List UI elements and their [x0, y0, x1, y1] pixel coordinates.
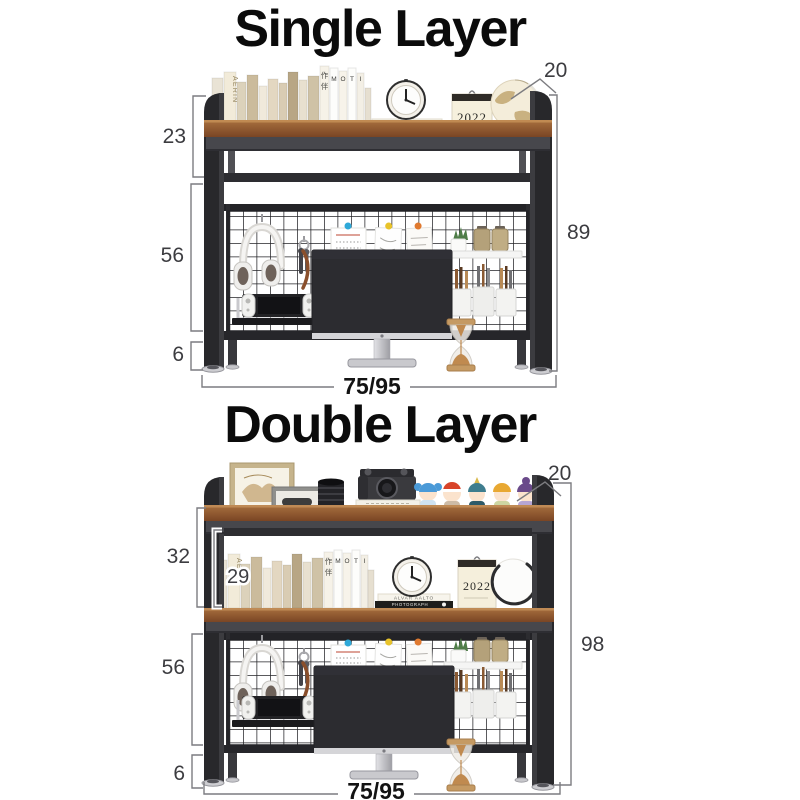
mesh-height-value-2: 56 [162, 656, 185, 679]
book-letter-i2: I [364, 558, 366, 565]
dimension-mesh-height-2: 56 [162, 634, 203, 745]
wood-shelf [204, 120, 552, 182]
hourglass-2 [447, 739, 475, 791]
book-cjk-char-1b: 作 [325, 556, 333, 566]
mesh-height-value: 56 [161, 244, 184, 267]
top-shelf-books: AERIN 作 伴 M O T I [212, 66, 371, 128]
ring-ornament [491, 559, 536, 604]
hourglass [447, 319, 475, 371]
monitor-base [348, 359, 416, 367]
metal-fascia [206, 137, 550, 151]
upper-crossbar [224, 528, 532, 536]
depth-value: 20 [544, 59, 567, 82]
total-height-value: 89 [567, 221, 590, 244]
single-layer-title: Single Layer [0, 2, 760, 57]
desk-calendar-2: 2022 [458, 557, 496, 608]
wall-clock [387, 79, 425, 119]
inner-shelf-value: 29 [227, 566, 249, 588]
top-section-value: 32 [167, 545, 190, 568]
depth-value-2: 20 [548, 462, 571, 485]
book-cjk-char-2: 伴 [321, 81, 329, 91]
single-layer-illustration: AERIN 作 伴 M O T I ALVAR AALTO [160, 50, 640, 402]
stacked-books-subtitle-2: PHOTOGRAPH [392, 602, 428, 607]
pin-blue [345, 223, 352, 230]
product-dimension-sheet: Single Layer Double Layer AERIN [0, 0, 800, 800]
book-letter-m: M [331, 76, 336, 83]
width-value-2: 75/95 [347, 778, 405, 800]
dimension-total-height: 89 [549, 95, 590, 371]
book-letter-m2: M [335, 558, 340, 565]
book-letter-t2: T [354, 558, 358, 565]
pen-cups-2 [451, 667, 516, 718]
dimension-feet-height: 6 [172, 342, 203, 370]
shelf-height-value: 23 [163, 125, 186, 148]
monitor-stand [374, 339, 390, 360]
total-height-value-2: 98 [581, 633, 604, 656]
monitor-2 [314, 666, 454, 779]
switch-console-shelf-2 [232, 696, 324, 727]
double-layer-illustration: AERIN 作 伴 M O T I ALVAR AALTO [160, 438, 640, 800]
book-cjk-char-1: 作 [321, 70, 329, 80]
book-letter-o2: O [344, 558, 349, 565]
crossbar [224, 173, 530, 182]
book-letter-o: O [340, 76, 345, 83]
dimension-width-2: 75/95 [204, 778, 560, 800]
dimension-feet-height-2: 6 [173, 755, 203, 788]
dimension-total-height-2: 98 [553, 483, 604, 785]
width-value: 75/95 [343, 373, 401, 399]
monitor [312, 250, 452, 367]
book-letter-i: I [360, 76, 362, 83]
calendar-year-2: 2022 [463, 579, 491, 593]
feet-height-value: 6 [172, 343, 184, 366]
book-letter-t: T [350, 76, 354, 83]
dimension-shelf-height: 23 [163, 96, 206, 177]
dimension-top-section: 32 [167, 508, 206, 607]
wall-clock-2 [393, 556, 431, 596]
dimension-mesh-height: 56 [161, 184, 203, 331]
top-wood-shelf [204, 505, 554, 536]
switch-console-shelf [232, 294, 324, 325]
book-cjk-char-2b: 伴 [325, 567, 333, 577]
dimension-width: 75/95 [202, 373, 556, 399]
middle-wood-shelf [204, 608, 554, 633]
feet-height-value-2: 6 [173, 762, 185, 785]
pen-cups [451, 264, 516, 316]
